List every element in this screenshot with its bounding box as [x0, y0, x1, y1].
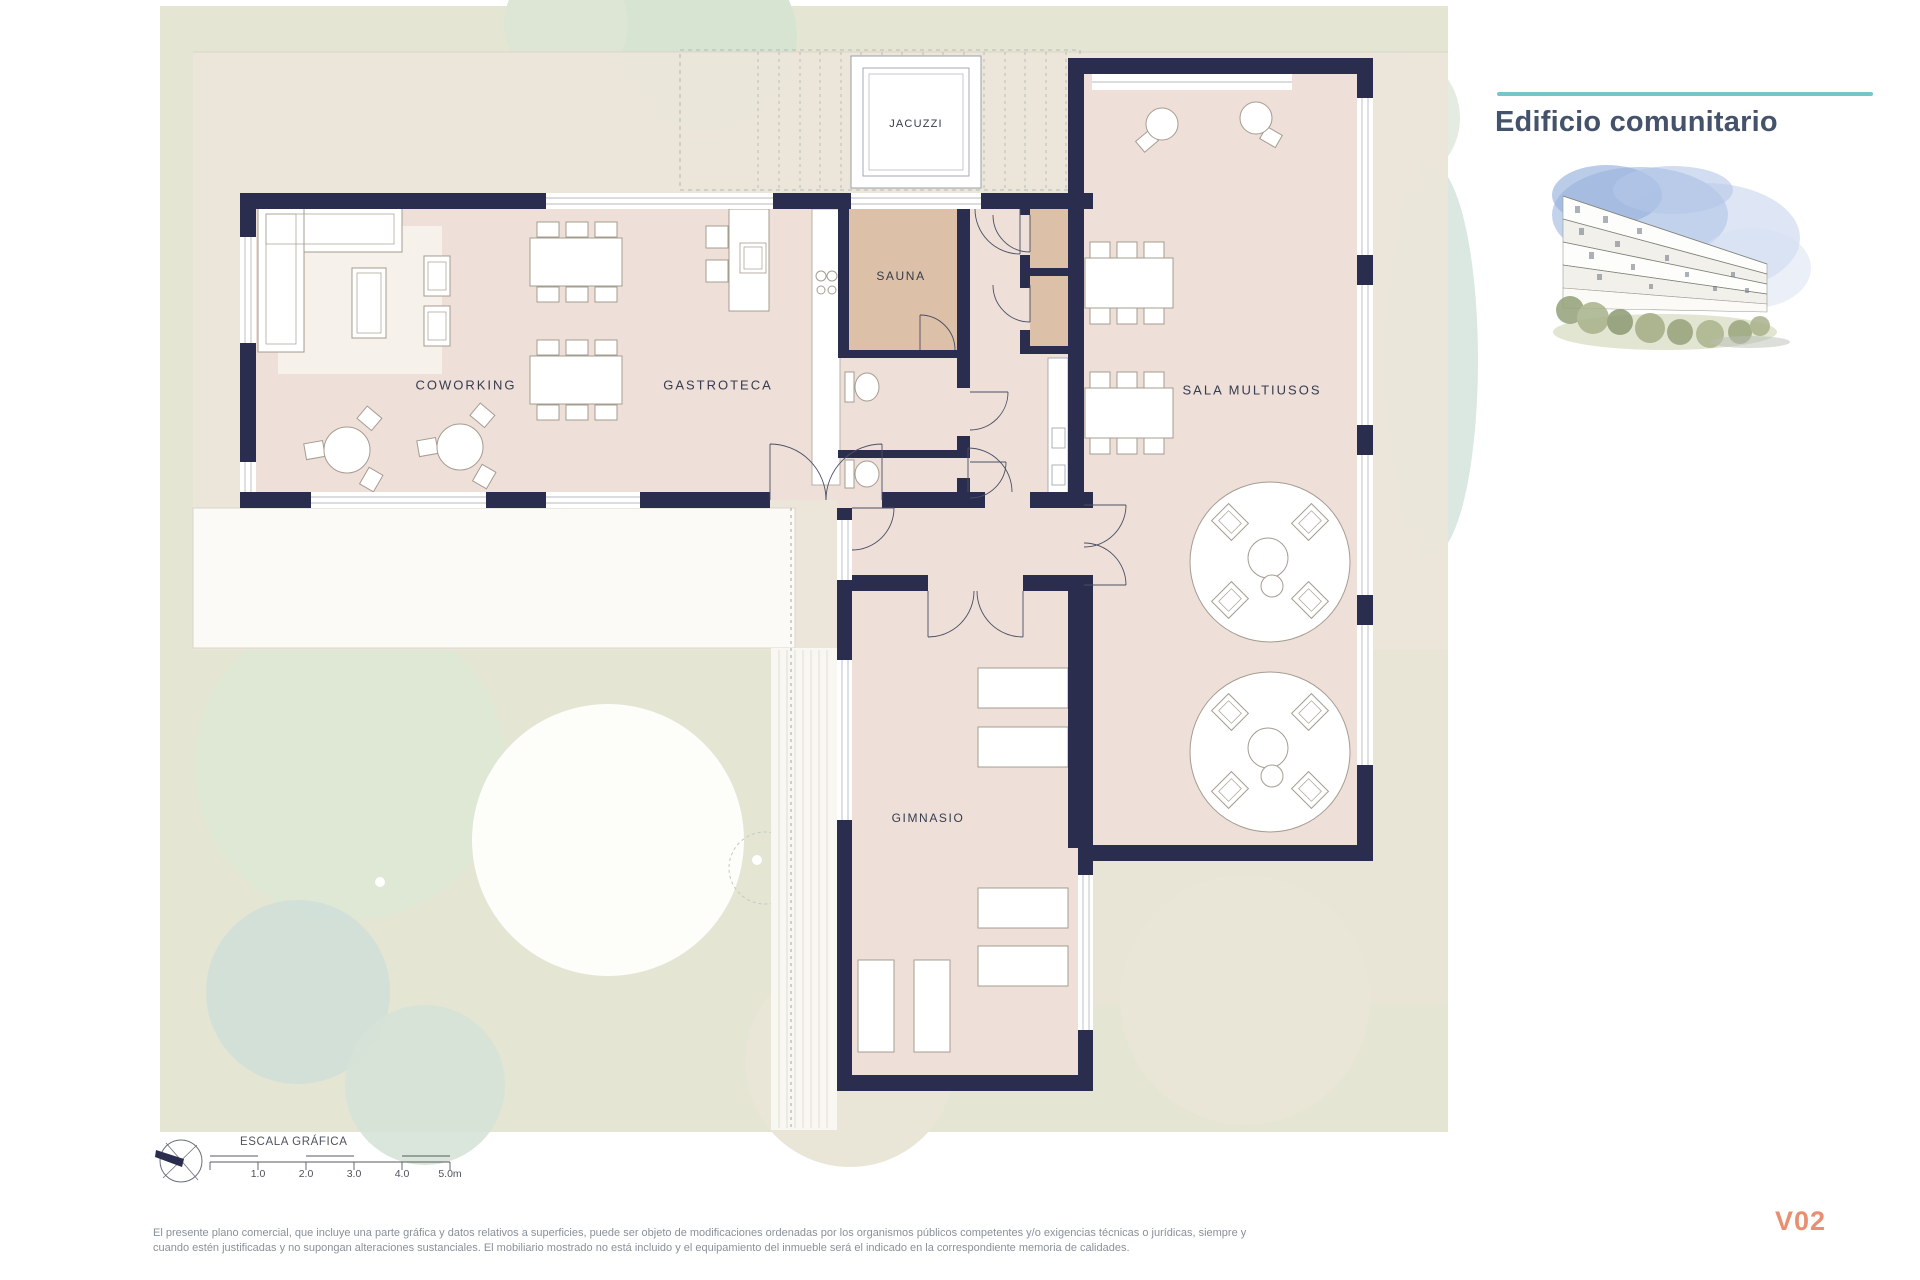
- page-title: Edificio comunitario: [1495, 106, 1778, 139]
- room-label-gimnasio: GIMNASIO: [892, 811, 965, 825]
- scale-tick-5: 5.0m: [438, 1168, 461, 1180]
- version-label: V02: [1775, 1206, 1826, 1237]
- disclaimer-line-1: El presente plano comercial, que incluye…: [153, 1226, 1473, 1241]
- room-label-coworking: COWORKING: [415, 378, 516, 393]
- scale-tick-2: 2.0: [299, 1168, 314, 1180]
- accent-divider: [1497, 92, 1873, 96]
- disclaimer: El presente plano comercial, que incluye…: [153, 1226, 1473, 1255]
- scale-tick-4: 4.0: [395, 1168, 410, 1180]
- scale-title: ESCALA GRÁFICA: [240, 1136, 347, 1148]
- compass-icon: [155, 1140, 202, 1182]
- scale-tick-3: 3.0: [347, 1168, 362, 1180]
- disclaimer-line-2: cuando estén justificadas y no supongan …: [153, 1241, 1473, 1256]
- building-illustration: [1545, 160, 1821, 360]
- scale-tick-1: 1.0: [251, 1168, 266, 1180]
- room-label-jacuzzi: JACUZZI: [889, 118, 943, 130]
- room-label-sala-multiusos: SALA MULTIUSOS: [1182, 383, 1321, 398]
- room-label-gastroteca: GASTROTECA: [663, 378, 773, 393]
- room-label-sauna: SAUNA: [876, 269, 925, 283]
